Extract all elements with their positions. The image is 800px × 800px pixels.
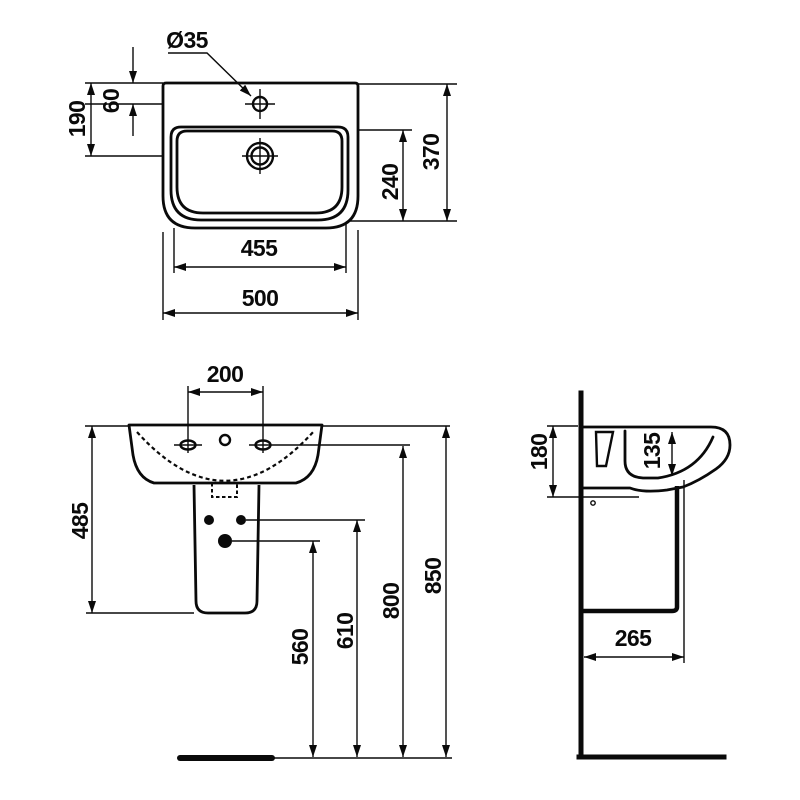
dim-label-560: 560 xyxy=(287,629,313,666)
pedestal-outline xyxy=(194,485,259,613)
dim-label-800: 800 xyxy=(378,583,404,620)
wall-fixing-dot xyxy=(591,501,595,505)
dim-180: 180 xyxy=(526,426,553,497)
dim-190: 190 xyxy=(64,83,91,156)
dim-610: 610 xyxy=(332,520,358,757)
dim-label-455: 455 xyxy=(241,235,278,261)
dim-370: 370 xyxy=(418,84,447,221)
pedestal-hole-left xyxy=(204,515,214,525)
washbasin-technical-drawing: Ø35 60 190 240 370 455 5 xyxy=(0,0,800,800)
dim-label-60: 60 xyxy=(98,89,124,113)
dim-label-180: 180 xyxy=(526,434,552,471)
basin-front-outline xyxy=(129,425,322,483)
dim-455: 455 xyxy=(174,235,346,267)
extension-lines xyxy=(85,386,450,613)
dim-label-200: 200 xyxy=(207,361,244,387)
dim-800: 800 xyxy=(378,446,404,757)
dim-label-190: 190 xyxy=(64,101,90,138)
dim-label-tap-diameter: Ø35 xyxy=(166,27,208,53)
dim-label-485: 485 xyxy=(67,502,93,539)
pedestal-outlet-hole xyxy=(218,534,232,548)
dim-label-370: 370 xyxy=(418,134,444,171)
dim-560: 560 xyxy=(287,541,313,757)
drawing-canvas: Ø35 60 190 240 370 455 5 xyxy=(0,0,800,800)
dim-485: 485 xyxy=(67,426,93,613)
dim-850: 850 xyxy=(420,426,446,757)
dim-200: 200 xyxy=(188,361,263,392)
front-view: 200 485 560 610 800 850 xyxy=(67,361,452,758)
dim-label-240: 240 xyxy=(377,164,403,201)
dim-label-610: 610 xyxy=(332,613,358,650)
top-view: Ø35 60 190 240 370 455 5 xyxy=(64,27,457,320)
dim-label-265: 265 xyxy=(615,625,652,651)
side-view: 180 135 265 xyxy=(526,393,730,757)
dim-500: 500 xyxy=(163,285,358,313)
dim-label-135: 135 xyxy=(639,432,665,469)
dim-label-850: 850 xyxy=(420,558,446,595)
dim-60: 60 xyxy=(98,47,133,136)
pedestal-side-outline xyxy=(583,486,677,611)
dim-label-500: 500 xyxy=(242,285,279,311)
pedestal-hole-right xyxy=(236,515,246,525)
dim-240: 240 xyxy=(377,130,403,221)
dim-265: 265 xyxy=(584,625,684,657)
